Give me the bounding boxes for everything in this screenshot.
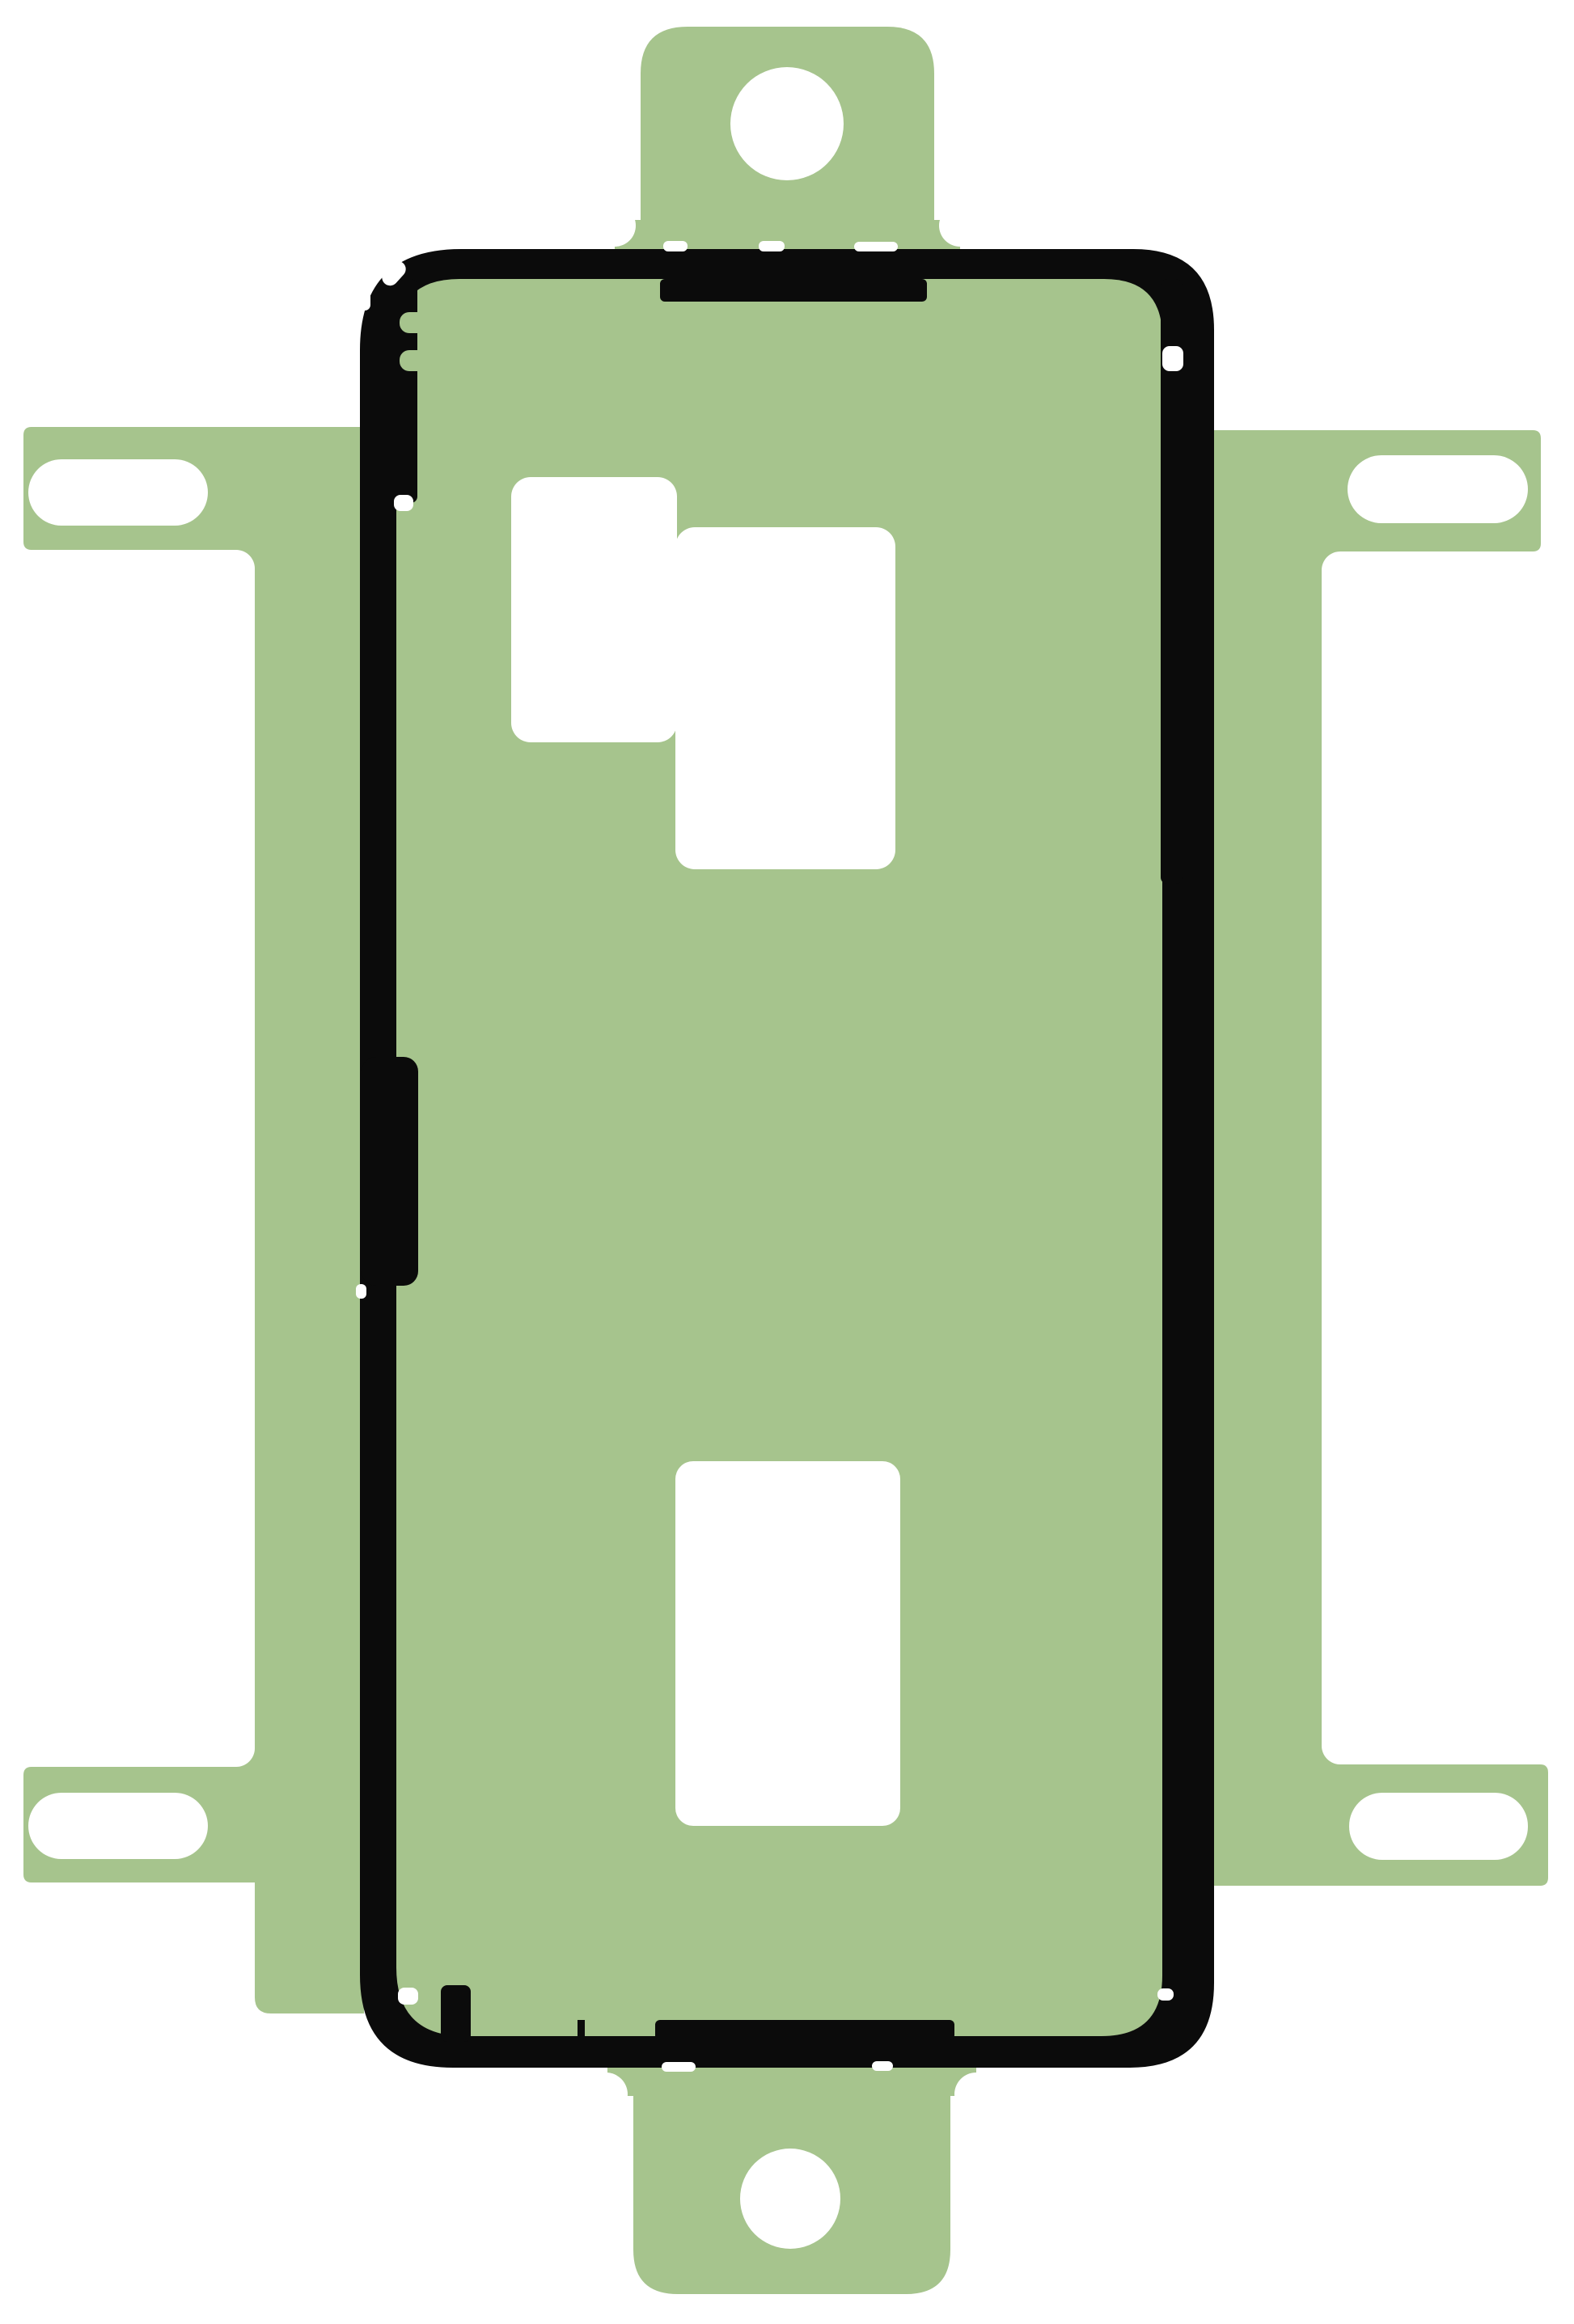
bottom-tick <box>578 2020 585 2041</box>
bottom-edge-thick-segment <box>655 2020 954 2040</box>
lower-left-slot <box>28 1793 208 1859</box>
camera-cutout-right <box>675 527 895 869</box>
fillet-cut <box>218 1730 255 1767</box>
left-edge-pad <box>362 1057 418 1286</box>
left-strip <box>255 485 364 2013</box>
top-edge-notch <box>759 241 785 251</box>
fillet-cut <box>1322 551 1359 589</box>
bottom-right-notch <box>1157 1988 1174 2001</box>
left-edge-notch <box>356 1284 366 1299</box>
fillet-cut <box>1322 1727 1359 1764</box>
inner-bump <box>400 312 432 333</box>
top-tab-round-hole <box>730 67 844 180</box>
battery-cutout <box>675 1461 900 1826</box>
inner-bump <box>400 350 432 371</box>
right-strip <box>1210 485 1322 1886</box>
upper-right-slot <box>1348 455 1528 523</box>
fillet-cut <box>594 205 636 247</box>
bottom-tick <box>668 2020 675 2041</box>
bottom-edge-notch <box>872 2061 893 2071</box>
corner-notch <box>359 283 370 311</box>
right-edge-notch <box>1162 346 1183 371</box>
upper-left-slot <box>28 459 208 526</box>
top-edge-notch <box>663 241 688 251</box>
camera-cutout-left <box>511 477 677 742</box>
bottom-left-notch <box>398 1988 418 2005</box>
top-edge-thick-segment <box>660 279 927 302</box>
lower-right-slot <box>1349 1793 1528 1860</box>
left-edge-notch <box>394 495 413 511</box>
product-image <box>0 0 1574 2324</box>
fillet-cut <box>954 2073 998 2116</box>
fillet-cut <box>939 205 981 247</box>
bottom-edge-notch <box>662 2062 696 2072</box>
bottom-tab-round-hole <box>740 2149 840 2249</box>
fillet-cut <box>218 550 255 587</box>
fillet-cut <box>584 2073 628 2116</box>
bottom-left-stub <box>441 1985 471 2042</box>
adhesive-sticker-graphic <box>0 0 1574 2324</box>
top-edge-notch <box>854 242 898 251</box>
